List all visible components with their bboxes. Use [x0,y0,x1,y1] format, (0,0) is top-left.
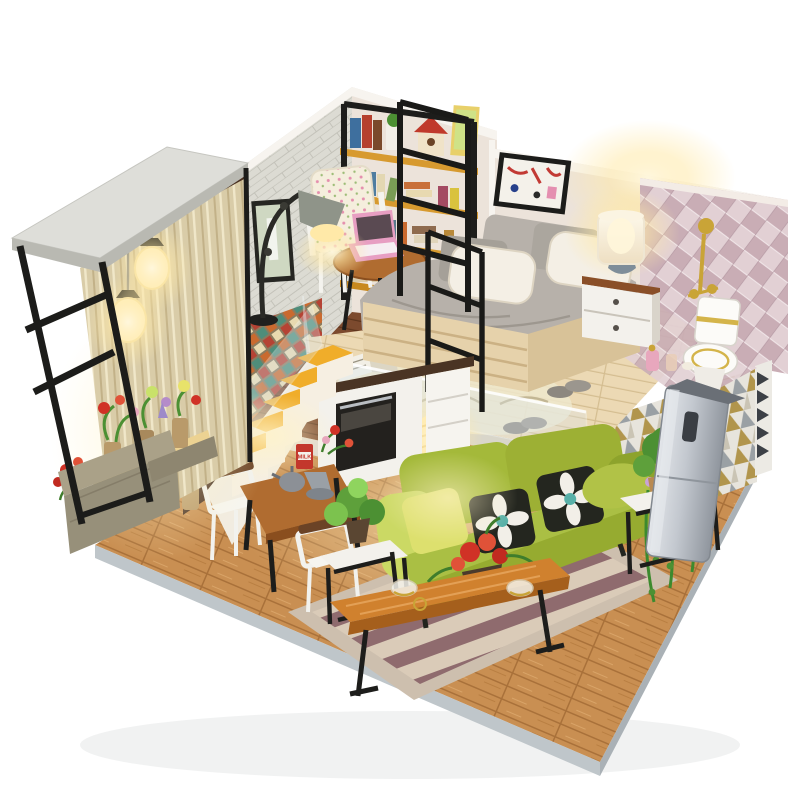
floor-lamp-glow [294,226,370,278]
oven [336,392,396,472]
milk-can-label: MILK [298,454,312,460]
zigzag-wall-edge [755,360,772,476]
product-photo-stage: MILK [0,0,800,800]
nightstand-side [652,292,660,348]
sofa-glow [378,452,518,544]
balcony [12,147,270,560]
nook-wall-art [251,199,295,283]
table-lamp [564,186,680,278]
milk-can: MILK [296,444,313,469]
nightstand [582,276,660,348]
ground-shadow [80,711,740,779]
bedroom-wall-art [493,152,571,214]
dollhouse-photo: MILK [0,0,800,800]
